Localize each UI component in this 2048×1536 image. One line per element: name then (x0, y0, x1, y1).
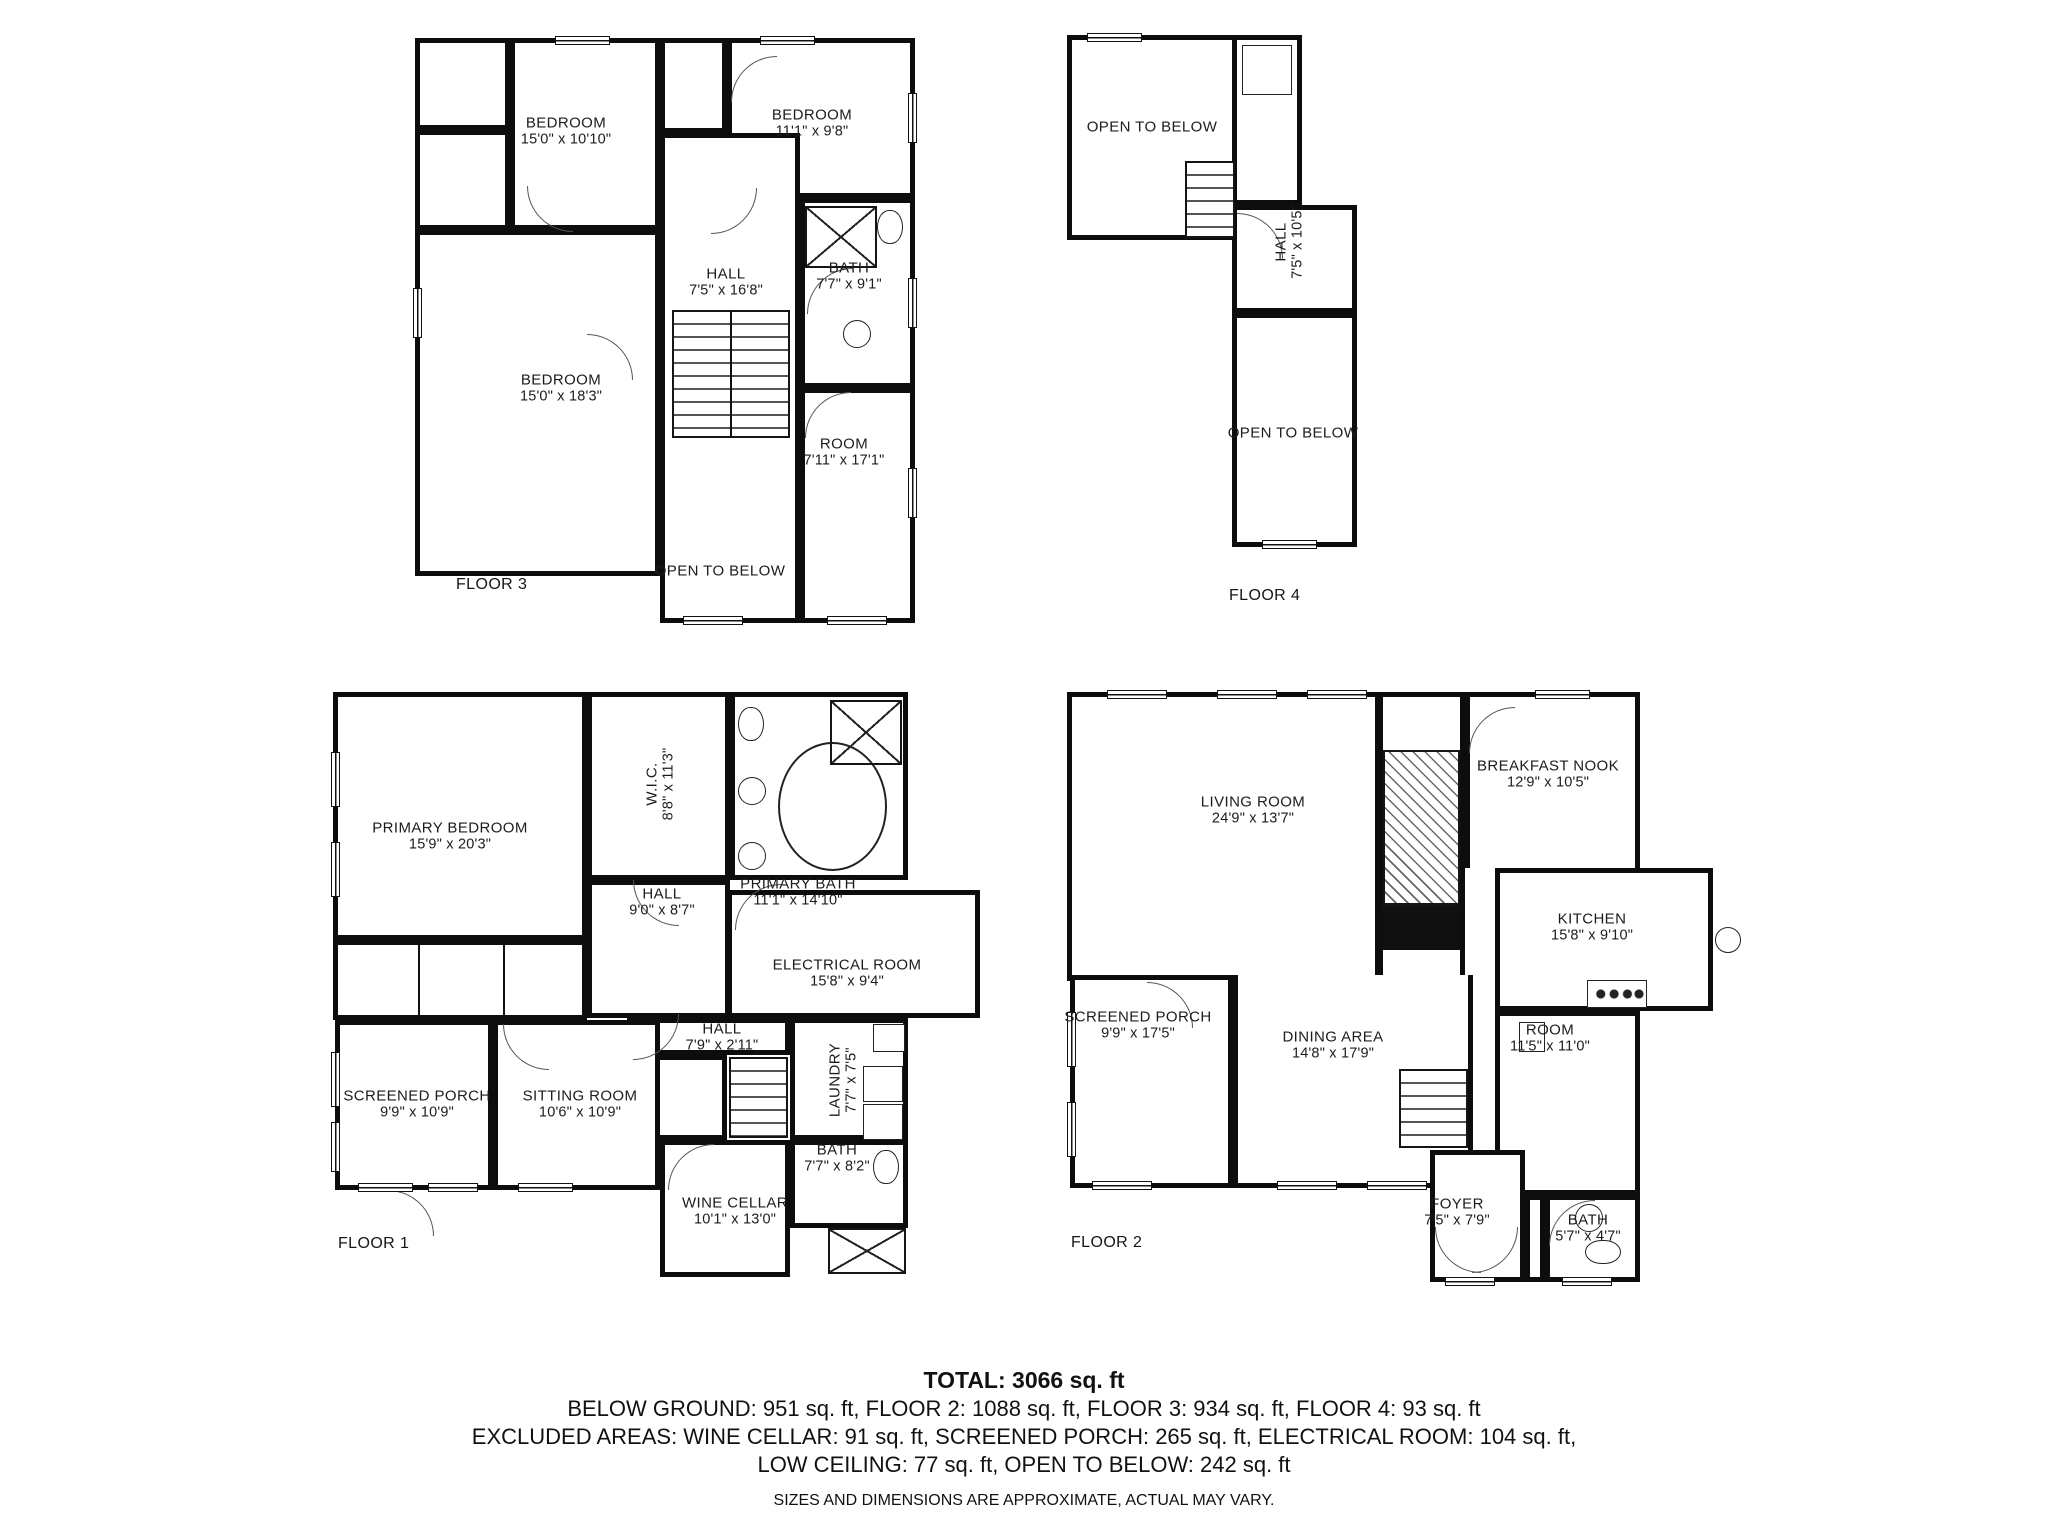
sink-icon (738, 842, 766, 870)
window (1445, 1277, 1495, 1286)
floor-tag-floor2: FLOOR 2 (1071, 1234, 1142, 1252)
excluded-areas-line2: LOW CEILING: 77 sq. ft, OPEN TO BELOW: 2… (0, 1451, 2048, 1479)
sink-icon (1715, 927, 1741, 953)
room-label-hall2: HALL 7'9" x 2'11" (686, 1021, 759, 1054)
stairs-icon (729, 1057, 788, 1138)
window (1087, 33, 1142, 42)
stairs-icon (1399, 1069, 1468, 1148)
room-label-kitchen: KITCHEN 15'8" x 9'10" (1551, 911, 1633, 944)
shower-icon (830, 700, 902, 765)
sink-icon (873, 1024, 905, 1052)
room-label-room: ROOM 11'5" x 11'0" (1510, 1022, 1590, 1055)
total-area: TOTAL: 3066 sq. ft (0, 1366, 2048, 1395)
window (683, 616, 743, 625)
window (908, 468, 917, 518)
window (1107, 690, 1167, 699)
room-label-open-below-lower: OPEN TO BELOW (1228, 425, 1359, 442)
stove-icon (1587, 980, 1647, 1008)
window (331, 1052, 340, 1107)
floor-plan-floor2: LIVING ROOM 24'9" x 13'7" BREAKFAST NOOK… (1067, 692, 1757, 1292)
room-label-primary-bedroom: PRIMARY BEDROOM 15'9" x 20'3" (372, 820, 527, 853)
floor2-living-room (1067, 692, 1380, 981)
floorplan-canvas: BEDROOM 15'0" x 10'10" BEDROOM 11'1" x 9… (0, 0, 2048, 1536)
toilet-icon (877, 210, 903, 244)
dryer-icon (863, 1104, 903, 1140)
window (331, 1122, 340, 1172)
room-label-wic: W.I.C. 8'8" x 11'3" (644, 748, 677, 821)
window (1277, 1181, 1337, 1190)
floor1-primary-bedroom (333, 692, 587, 940)
room-label-open-below-upper: OPEN TO BELOW (1087, 119, 1218, 136)
floor2-closet-strip (1525, 1195, 1545, 1282)
window (1067, 1102, 1076, 1157)
excluded-areas-line: EXCLUDED AREAS: WINE CELLAR: 91 sq. ft, … (0, 1423, 2048, 1451)
area-summary: TOTAL: 3066 sq. ft BELOW GROUND: 951 sq.… (0, 1366, 2048, 1479)
window (1367, 1181, 1427, 1190)
window (1092, 1181, 1152, 1190)
closet-box (1242, 45, 1292, 95)
room-label-bath: BATH 7'7" x 8'2" (804, 1142, 870, 1175)
sink-icon (843, 320, 871, 348)
floor-plan-floor4: OPEN TO BELOW HALL 7'5" x 10'5" OPEN TO … (1067, 35, 1362, 625)
window (555, 36, 610, 45)
window (358, 1183, 413, 1192)
floor3-closet-a (415, 38, 510, 130)
room-label-hall: HALL 9'0" x 8'7" (629, 886, 695, 919)
room-label-room: ROOM 7'11" x 17'1" (803, 436, 884, 469)
room-label-open-below: OPEN TO BELOW (655, 563, 786, 580)
floor3-closet-b (415, 130, 510, 230)
toilet-icon (738, 707, 764, 741)
window (908, 93, 917, 143)
room-label-bedroom1: BEDROOM 15'0" x 10'10" (521, 115, 611, 148)
floor-plan-floor3: BEDROOM 15'0" x 10'10" BEDROOM 11'1" x 9… (415, 38, 915, 628)
room-label-bedroom3: BEDROOM 15'0" x 18'3" (520, 372, 602, 405)
room-label-bath: BATH 5'7" x 4'7" (1555, 1212, 1621, 1245)
floor-tag-floor1: FLOOR 1 (338, 1235, 409, 1253)
room-label-hall: HALL 7'5" x 16'8" (689, 266, 763, 299)
window (428, 1183, 478, 1192)
window (827, 616, 887, 625)
disclaimer-text: SIZES AND DIMENSIONS ARE APPROXIMATE, AC… (0, 1492, 2048, 1510)
cabinet-hatch (1383, 750, 1460, 905)
window (1535, 690, 1590, 699)
room-label-living-room: LIVING ROOM 24'9" x 13'7" (1201, 794, 1305, 827)
room-label-screened-porch: SCREENED PORCH 9'9" x 17'5" (1064, 1009, 1211, 1042)
room-label-bedroom2: BEDROOM 11'1" x 9'8" (772, 107, 852, 140)
window (331, 752, 340, 807)
room-label-screened-porch: SCREENED PORCH 9'9" x 10'9" (343, 1088, 490, 1121)
room-label-foyer: FOYER 7'5" x 7'9" (1424, 1196, 1490, 1229)
room-label-breakfast-nook: BREAKFAST NOOK 12'9" x 10'5" (1477, 758, 1619, 791)
room-label-bath: BATH 7'7" x 9'1" (816, 260, 882, 293)
washer-icon (863, 1066, 903, 1102)
window (760, 36, 815, 45)
window (1562, 1277, 1612, 1286)
window (518, 1183, 573, 1192)
shower-icon (828, 1228, 906, 1274)
room-label-dining-area: DINING AREA 14'8" x 17'9" (1282, 1029, 1383, 1062)
room-label-electrical: ELECTRICAL ROOM 15'8" x 9'4" (773, 957, 922, 990)
closet-divider (418, 943, 420, 1017)
room-label-sitting-room: SITTING ROOM 10'6" x 10'9" (523, 1088, 638, 1121)
window (908, 278, 917, 328)
floor-areas-line: BELOW GROUND: 951 sq. ft, FLOOR 2: 1088 … (0, 1395, 2048, 1423)
floor-tag-floor4: FLOOR 4 (1229, 587, 1300, 605)
window (331, 842, 340, 897)
window (1307, 690, 1367, 699)
floor-plan-floor1: PRIMARY BEDROOM 15'9" x 20'3" W.I.C. 8'8… (333, 692, 983, 1282)
closet-divider (503, 943, 505, 1017)
room-label-primary-bath: PRIMARY BATH 11'1" x 14'10" (740, 876, 856, 909)
stairs-divider (730, 310, 732, 438)
floor3-closet-mid (660, 38, 727, 133)
fireplace-block (1383, 905, 1460, 950)
window (413, 288, 422, 338)
door-arc (388, 1190, 434, 1236)
floor3-open-below-area (660, 428, 800, 623)
floor1-closet-band (333, 940, 587, 1020)
floor-tag-floor3: FLOOR 3 (456, 576, 527, 594)
stairs-icon (1185, 161, 1235, 238)
room-label-wine-cellar: WINE CELLAR 10'1" x 13'0" (682, 1195, 788, 1228)
window (1262, 540, 1317, 549)
toilet-icon (873, 1150, 899, 1184)
sink-icon (738, 777, 766, 805)
room-label-laundry: LAUNDRY 7'7" x 7'5" (827, 1043, 860, 1117)
window (1217, 690, 1277, 699)
room-label-hall: HALL 7'5" x 10'5" (1273, 205, 1306, 279)
